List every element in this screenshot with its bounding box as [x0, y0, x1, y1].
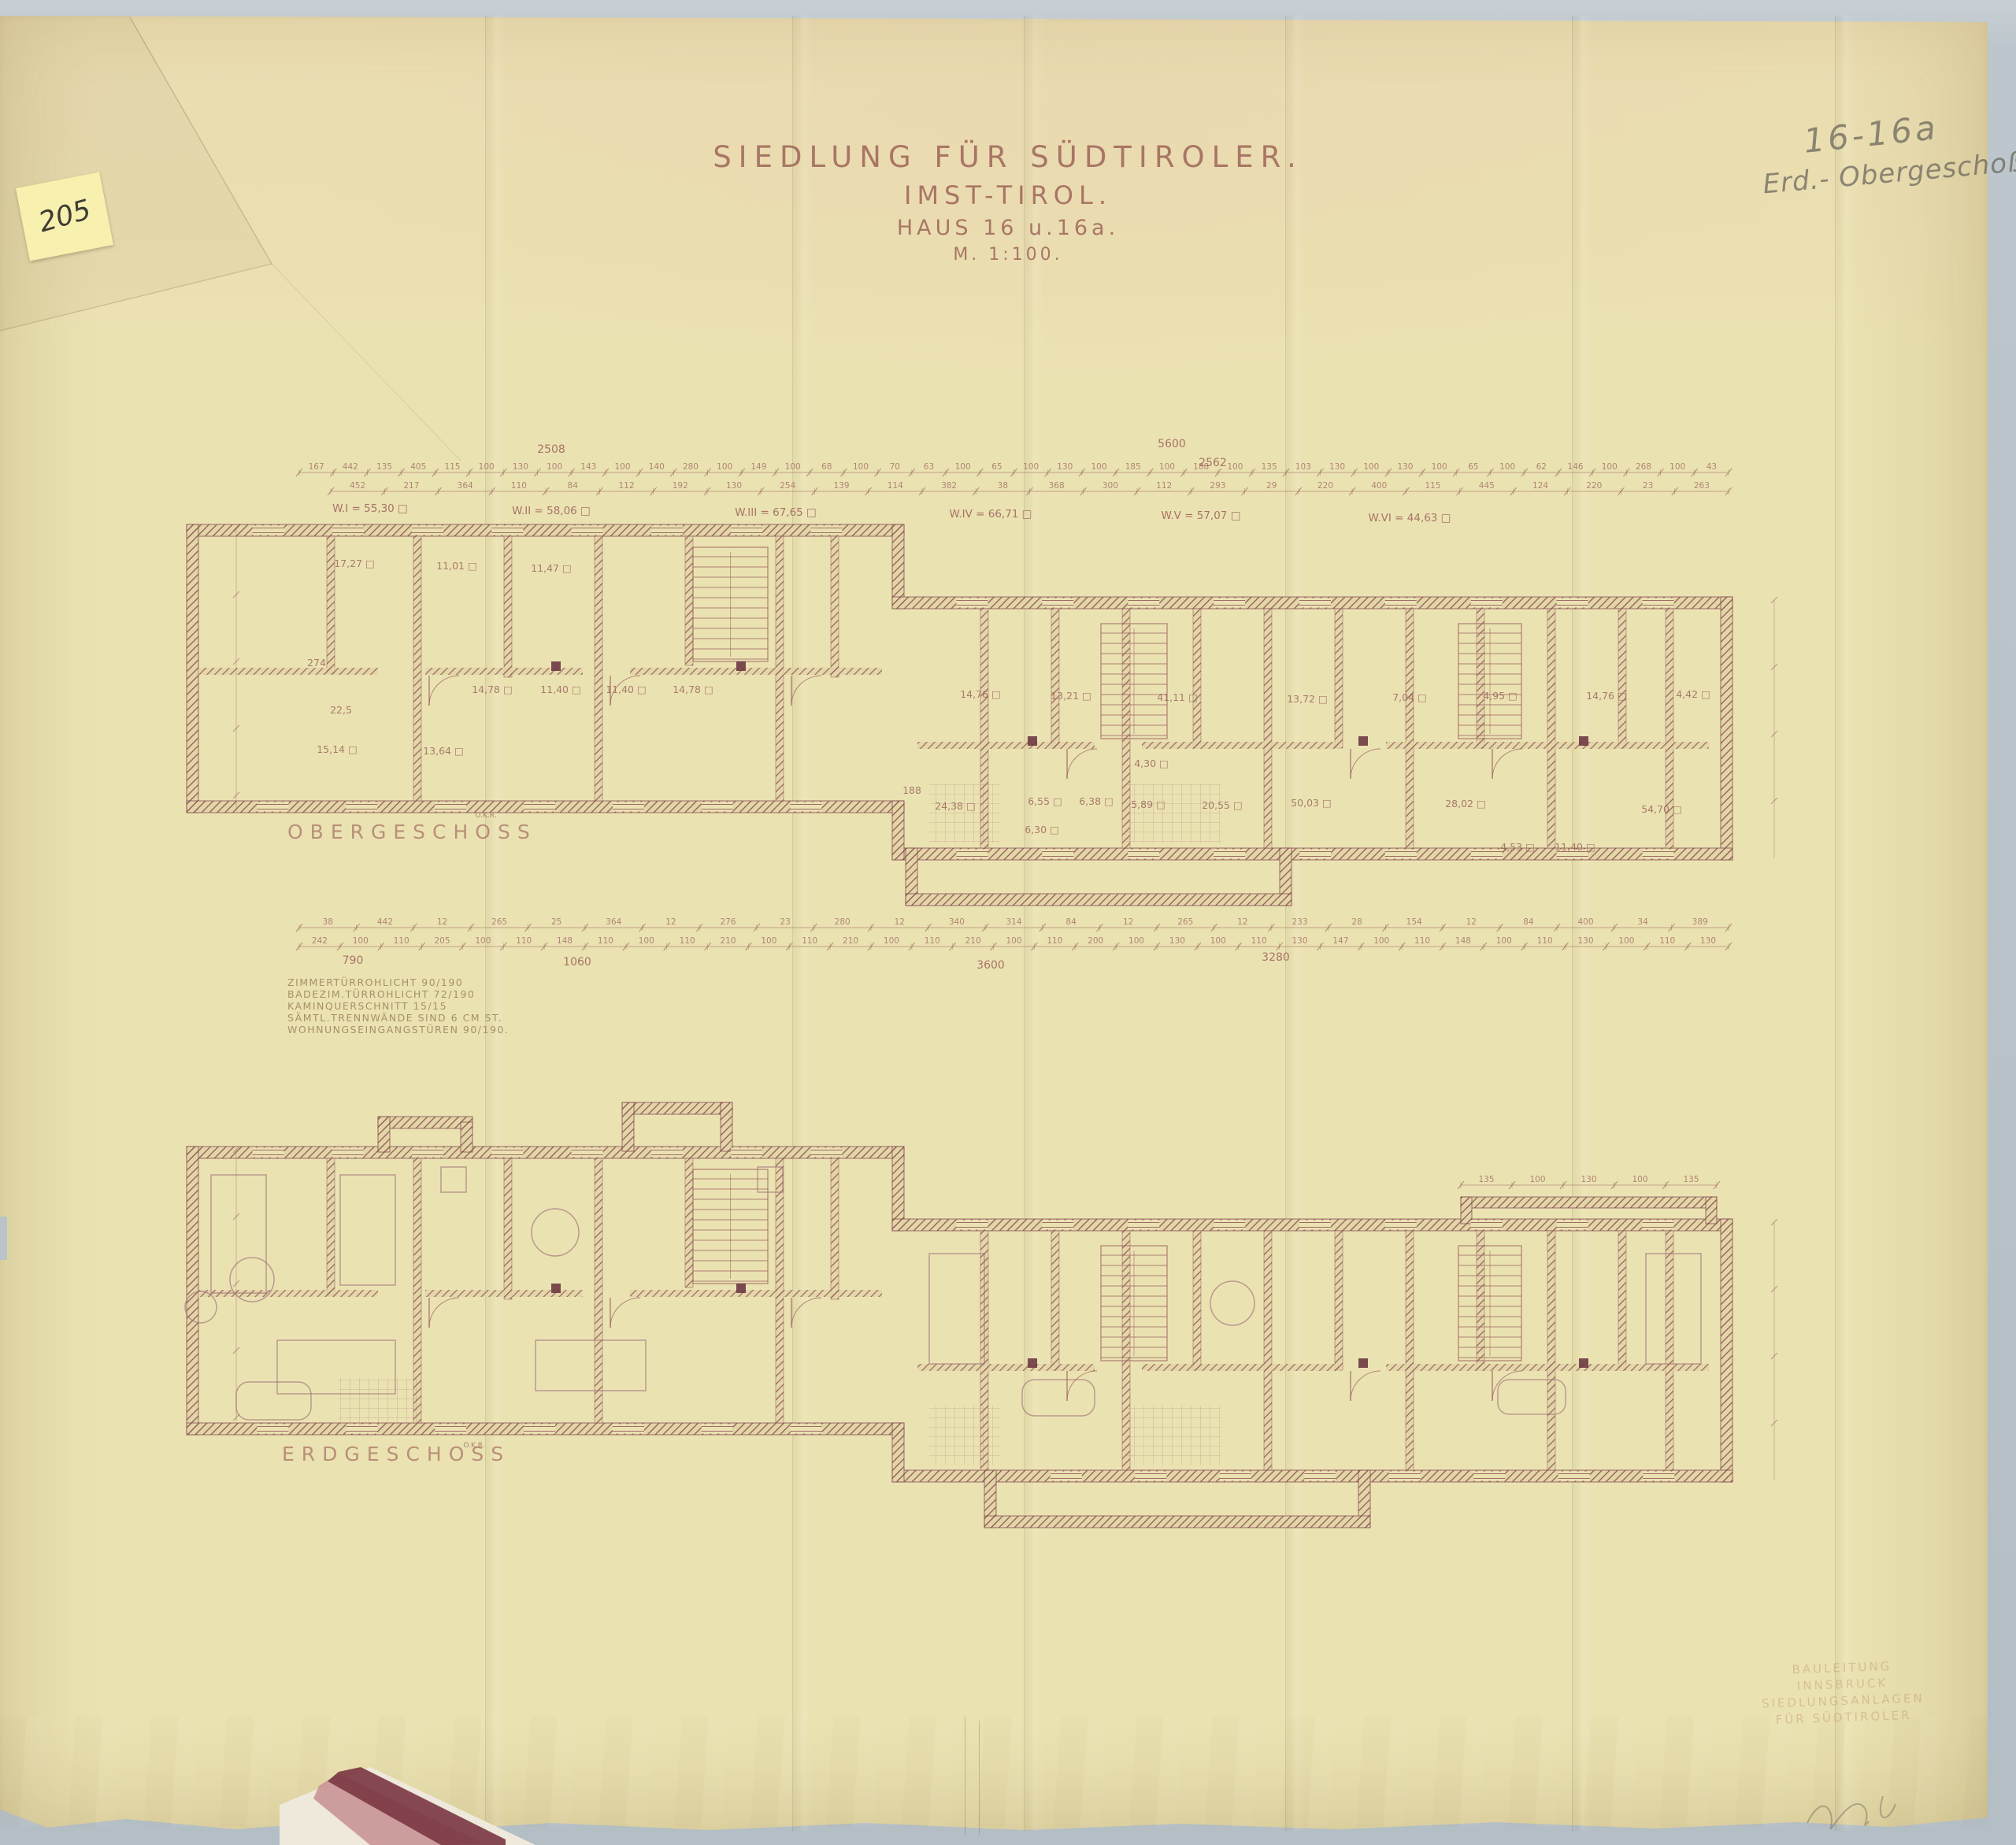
svg-text:100: 100 [1373, 936, 1389, 946]
dimension-chains-group: 1674421354051151001301001431001402801001… [233, 438, 1777, 1480]
svg-text:13,72 □: 13,72 □ [1287, 693, 1328, 705]
svg-text:23: 23 [780, 917, 790, 927]
svg-text:130: 130 [1329, 462, 1345, 472]
svg-text:114: 114 [888, 481, 903, 491]
svg-text:28: 28 [1351, 917, 1362, 927]
svg-text:4,42 □: 4,42 □ [1676, 688, 1710, 700]
svg-text:12: 12 [1123, 917, 1133, 927]
svg-text:400: 400 [1371, 481, 1387, 491]
title-line-3: HAUS 16 u.16a. [693, 216, 1323, 240]
svg-text:34: 34 [1637, 917, 1648, 927]
svg-text:124: 124 [1532, 481, 1548, 491]
svg-text:100: 100 [615, 462, 631, 472]
svg-text:100: 100 [1091, 462, 1107, 472]
svg-text:62: 62 [1536, 462, 1547, 472]
sticky-note-number: 205 [35, 195, 94, 239]
svg-text:12: 12 [1237, 917, 1247, 927]
svg-text:63: 63 [924, 462, 934, 472]
svg-text:100: 100 [1128, 936, 1144, 946]
svg-text:68: 68 [821, 462, 832, 472]
pencil-signature [1807, 1796, 1896, 1828]
svg-text:364: 364 [606, 917, 621, 927]
svg-text:314: 314 [1006, 917, 1021, 927]
floor-plan-drawing: 1674421354051151001301001431001402801001… [0, 0, 2016, 1845]
svg-text:84: 84 [1065, 917, 1077, 927]
svg-text:130: 130 [513, 462, 528, 472]
svg-text:146: 146 [1568, 462, 1584, 472]
svg-text:100: 100 [1496, 936, 1512, 946]
svg-text:100: 100 [785, 462, 801, 472]
svg-text:280: 280 [835, 917, 850, 927]
svg-text:100: 100 [717, 462, 732, 472]
svg-text:100: 100 [353, 936, 369, 946]
svg-text:43: 43 [1707, 462, 1717, 472]
svg-text:6,55 □: 6,55 □ [1028, 795, 1062, 807]
svg-text:41,11 □: 41,11 □ [1157, 691, 1198, 703]
title-line-2: IMST-TIROL. [693, 180, 1323, 210]
svg-text:110: 110 [511, 481, 527, 491]
svg-text:115: 115 [1425, 481, 1440, 491]
svg-text:2562: 2562 [1199, 457, 1227, 469]
svg-text:140: 140 [649, 462, 665, 472]
svg-text:368: 368 [1049, 481, 1065, 491]
svg-text:148: 148 [557, 936, 573, 946]
svg-text:50,03 □: 50,03 □ [1291, 797, 1332, 809]
svg-text:12: 12 [665, 917, 676, 927]
svg-text:12: 12 [437, 917, 447, 927]
svg-text:167: 167 [309, 462, 324, 472]
svg-text:65: 65 [991, 462, 1002, 472]
room-labels-group: 17,27 □11,01 □11,47 □14,78 □11,40 □11,40… [307, 558, 1710, 1450]
svg-text:W.V = 57,07 □: W.V = 57,07 □ [1162, 509, 1241, 522]
svg-text:274: 274 [307, 657, 326, 669]
svg-text:100: 100 [1669, 462, 1685, 472]
scan-canvas: 1674421354051151001301001431001402801001… [0, 0, 2016, 1845]
svg-text:11,47 □: 11,47 □ [531, 562, 572, 574]
svg-text:130: 130 [726, 481, 742, 491]
svg-text:110: 110 [598, 936, 613, 946]
svg-text:143: 143 [580, 462, 596, 472]
svg-text:6,38 □: 6,38 □ [1079, 795, 1114, 807]
spec-notes-block: ZIMMERTÜRROHLICHT 90/190 BADEZIM.TÜRROHL… [287, 976, 509, 1035]
svg-text:112: 112 [618, 481, 634, 491]
svg-text:220: 220 [1317, 481, 1333, 491]
svg-text:100: 100 [1023, 462, 1039, 472]
svg-text:147: 147 [1332, 936, 1348, 946]
svg-text:22,5: 22,5 [330, 704, 352, 716]
svg-text:84: 84 [568, 481, 579, 491]
paper-edge-notch [0, 1217, 7, 1260]
svg-text:100: 100 [1006, 936, 1021, 946]
svg-text:100: 100 [955, 462, 971, 472]
svg-text:38: 38 [998, 481, 1008, 491]
svg-text:100: 100 [1529, 1175, 1545, 1184]
svg-text:405: 405 [410, 462, 426, 472]
svg-text:130: 130 [1057, 462, 1073, 472]
svg-text:W.IV = 66,71 □: W.IV = 66,71 □ [950, 508, 1032, 521]
svg-text:110: 110 [925, 936, 940, 946]
svg-text:192: 192 [673, 481, 688, 491]
svg-text:112: 112 [1156, 481, 1172, 491]
svg-text:188: 188 [902, 784, 921, 796]
svg-text:149: 149 [750, 462, 766, 472]
svg-text:110: 110 [1659, 936, 1675, 946]
spec-note-line: WOHNUNGSEINGANGSTÜREN 90/190. [287, 1024, 509, 1035]
svg-text:100: 100 [639, 936, 654, 946]
svg-text:100: 100 [1227, 462, 1243, 472]
svg-text:233: 233 [1291, 917, 1307, 927]
svg-text:254: 254 [780, 481, 795, 491]
svg-text:265: 265 [491, 917, 507, 927]
svg-text:4,53 □: 4,53 □ [1500, 841, 1535, 853]
svg-text:130: 130 [1700, 936, 1716, 946]
svg-text:110: 110 [1251, 936, 1267, 946]
svg-text:364: 364 [458, 481, 473, 491]
svg-text:5600: 5600 [1158, 438, 1186, 450]
svg-text:452: 452 [350, 481, 365, 491]
svg-text:148: 148 [1455, 936, 1471, 946]
svg-text:20,55 □: 20,55 □ [1202, 799, 1243, 811]
svg-text:268: 268 [1636, 462, 1651, 472]
svg-text:100: 100 [475, 936, 491, 946]
svg-text:110: 110 [802, 936, 817, 946]
svg-text:110: 110 [1537, 936, 1553, 946]
svg-text:442: 442 [343, 462, 358, 472]
svg-text:130: 130 [1581, 1175, 1596, 1184]
svg-text:110: 110 [394, 936, 409, 946]
svg-text:135: 135 [1478, 1175, 1494, 1184]
svg-text:100: 100 [853, 462, 869, 472]
svg-text:17,27 □: 17,27 □ [334, 558, 375, 569]
svg-text:280: 280 [683, 462, 699, 472]
svg-text:4,30 □: 4,30 □ [1134, 758, 1169, 769]
svg-text:154: 154 [1406, 917, 1422, 927]
svg-text:23: 23 [1643, 481, 1653, 491]
svg-text:O.K.R.: O.K.R. [475, 812, 496, 820]
svg-text:84: 84 [1523, 917, 1534, 927]
svg-text:15,14 □: 15,14 □ [317, 743, 358, 755]
title-block: SIEDLUNG FÜR SÜDTIROLER. IMST-TIROL. HAU… [693, 140, 1323, 265]
svg-text:205: 205 [434, 936, 450, 946]
svg-text:100: 100 [547, 462, 562, 472]
svg-text:100: 100 [1210, 936, 1226, 946]
svg-text:6,30 □: 6,30 □ [1025, 824, 1059, 835]
svg-text:7,04 □: 7,04 □ [1392, 691, 1427, 703]
svg-text:110: 110 [680, 936, 695, 946]
svg-text:4,95 □: 4,95 □ [1483, 690, 1518, 702]
svg-text:100: 100 [479, 462, 495, 472]
svg-text:242: 242 [312, 936, 328, 946]
svg-text:130: 130 [1577, 936, 1593, 946]
svg-text:24,38 □: 24,38 □ [935, 800, 976, 812]
svg-text:W.I = 55,30 □: W.I = 55,30 □ [332, 502, 408, 515]
svg-text:2508: 2508 [537, 443, 565, 456]
svg-text:14,76 □: 14,76 □ [960, 688, 1001, 700]
svg-text:100: 100 [761, 936, 776, 946]
svg-text:14,76 □: 14,76 □ [1586, 690, 1627, 702]
svg-text:100: 100 [1499, 462, 1515, 472]
svg-text:200: 200 [1088, 936, 1103, 946]
svg-text:11,40 □: 11,40 □ [540, 684, 581, 695]
svg-text:130: 130 [1169, 936, 1185, 946]
svg-text:29: 29 [1266, 481, 1277, 491]
svg-text:135: 135 [1262, 462, 1277, 472]
svg-text:389: 389 [1692, 917, 1708, 927]
svg-text:25: 25 [551, 917, 561, 927]
spec-note-line: SÄMTL.TRENNWÄNDE SIND 6 CM ST. [287, 1012, 509, 1024]
svg-text:5,89 □: 5,89 □ [1131, 798, 1165, 810]
svg-text:139: 139 [834, 481, 850, 491]
svg-text:W.III = 67,65 □: W.III = 67,65 □ [735, 506, 817, 519]
svg-text:185: 185 [1125, 462, 1141, 472]
svg-text:54,70 □: 54,70 □ [1641, 803, 1682, 815]
spec-note-line: KAMINQUERSCHNITT 15/15 [287, 1000, 509, 1012]
svg-text:276: 276 [720, 917, 736, 927]
svg-text:100: 100 [1602, 462, 1618, 472]
svg-text:265: 265 [1177, 917, 1193, 927]
svg-text:100: 100 [1432, 462, 1447, 472]
spec-note-line: ZIMMERTÜRROHLICHT 90/190 [287, 976, 509, 988]
svg-text:115: 115 [444, 462, 460, 472]
svg-text:14,78 □: 14,78 □ [472, 684, 513, 695]
svg-text:110: 110 [1047, 936, 1062, 946]
svg-text:130: 130 [1397, 462, 1413, 472]
svg-text:300: 300 [1102, 481, 1118, 491]
svg-text:130: 130 [1291, 936, 1307, 946]
svg-text:3600: 3600 [976, 959, 1005, 972]
svg-text:1060: 1060 [563, 956, 591, 969]
title-line-1: SIEDLUNG FÜR SÜDTIROLER. [693, 140, 1323, 174]
svg-text:790: 790 [343, 954, 364, 967]
svg-text:442: 442 [377, 917, 393, 927]
svg-text:14,78 □: 14,78 □ [673, 684, 713, 695]
svg-text:135: 135 [1683, 1175, 1699, 1184]
svg-text:220: 220 [1586, 481, 1602, 491]
svg-text:65: 65 [1468, 462, 1478, 472]
svg-text:445: 445 [1479, 481, 1495, 491]
lower-plan-label: ERDGESCHOSS [282, 1443, 510, 1465]
svg-text:11,40 □: 11,40 □ [606, 684, 647, 695]
svg-text:263: 263 [1694, 481, 1710, 491]
svg-text:100: 100 [1363, 462, 1379, 472]
svg-text:38: 38 [323, 917, 333, 927]
svg-text:103: 103 [1295, 462, 1311, 472]
upper-plan-label: OBERGESCHOSS [287, 821, 537, 843]
svg-text:340: 340 [949, 917, 965, 927]
svg-text:12: 12 [1466, 917, 1477, 927]
svg-text:293: 293 [1210, 481, 1225, 491]
svg-text:100: 100 [1618, 936, 1634, 946]
svg-text:W.VI = 44,63 □: W.VI = 44,63 □ [1369, 512, 1451, 524]
svg-text:12: 12 [895, 917, 905, 927]
svg-text:210: 210 [965, 936, 981, 946]
svg-text:11,01 □: 11,01 □ [436, 560, 477, 572]
svg-text:135: 135 [376, 462, 392, 472]
svg-text:3280: 3280 [1262, 951, 1290, 964]
svg-text:70: 70 [890, 462, 900, 472]
svg-text:100: 100 [1159, 462, 1175, 472]
svg-text:382: 382 [941, 481, 957, 491]
svg-text:210: 210 [720, 936, 736, 946]
svg-text:28,02 □: 28,02 □ [1445, 798, 1486, 810]
svg-text:110: 110 [1414, 936, 1430, 946]
svg-text:100: 100 [884, 936, 899, 946]
svg-text:110: 110 [516, 936, 532, 946]
svg-text:13,21 □: 13,21 □ [1051, 690, 1091, 702]
office-stamp: BAULEITUNG INNSBRUCK SIEDLUNGSANLAGEN FÜ… [1692, 1654, 1994, 1731]
svg-text:400: 400 [1577, 917, 1593, 927]
spec-note-line: BADEZIM.TÜRROHLICHT 72/190 [287, 988, 509, 1000]
svg-text:217: 217 [403, 481, 419, 491]
svg-text:W.II = 58,06 □: W.II = 58,06 □ [512, 505, 591, 517]
svg-text:13,64 □: 13,64 □ [423, 745, 464, 757]
svg-text:100: 100 [1632, 1175, 1647, 1184]
svg-text:11,40 □: 11,40 □ [1555, 841, 1595, 853]
title-line-4: M. 1:100. [693, 245, 1323, 265]
svg-text:210: 210 [843, 936, 858, 946]
